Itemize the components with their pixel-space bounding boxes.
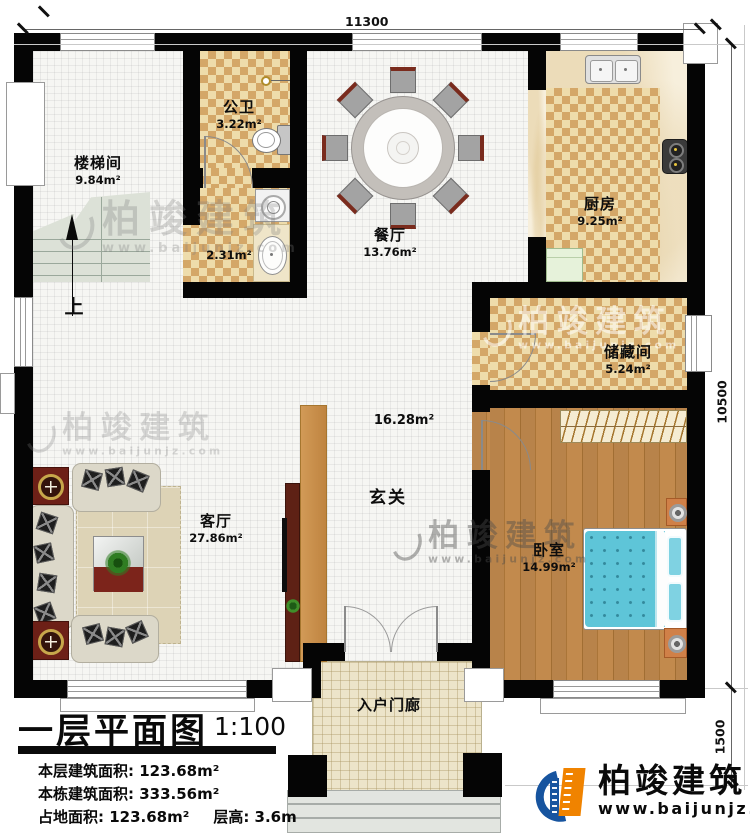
window xyxy=(67,680,247,698)
porch-column xyxy=(288,755,327,797)
kitchen-entry-threshold xyxy=(528,90,546,237)
refrigerator xyxy=(546,248,583,282)
pillow xyxy=(667,582,683,622)
window-sill xyxy=(540,698,686,714)
stove xyxy=(662,139,688,174)
wall xyxy=(155,33,352,51)
dimension-line-right xyxy=(731,44,732,688)
window xyxy=(553,680,660,698)
side-table xyxy=(30,467,69,505)
bay-box xyxy=(6,82,45,186)
wall xyxy=(687,372,705,698)
window xyxy=(60,33,155,51)
room-label-laundry: 2.31m² xyxy=(206,248,251,262)
wardrobe xyxy=(560,410,687,443)
area-info-line: 本栋建筑面积: 333.56m² xyxy=(38,783,219,804)
wall xyxy=(472,470,490,680)
laundry-counter xyxy=(253,224,290,282)
porch-side-sill xyxy=(464,668,504,702)
logo-mark-icon xyxy=(536,764,592,826)
company-logo: 柏竣建筑 www.baijunjz.com xyxy=(536,762,736,828)
potted-plant xyxy=(103,548,133,578)
area-info-line: 占地面积: 123.68m²层高: 3.6m xyxy=(38,806,297,827)
wall xyxy=(482,33,560,51)
porch-floor xyxy=(312,661,482,792)
room-label-bedroom: 卧室14.99m² xyxy=(522,539,575,574)
witness-line xyxy=(744,25,745,790)
window xyxy=(685,315,712,372)
sofa-left xyxy=(29,505,74,629)
wall xyxy=(660,680,705,698)
witness-line xyxy=(14,44,705,45)
porch-side-sill xyxy=(272,668,312,702)
dining-chair xyxy=(458,135,484,161)
dimension-top-value: 11300 xyxy=(345,14,389,29)
entry-door-leaf xyxy=(436,606,438,652)
door-leaf xyxy=(204,136,206,188)
ceiling-light xyxy=(261,76,271,86)
kitchen-sink xyxy=(585,55,641,84)
washing-machine xyxy=(255,189,290,222)
room-label-living: 客厅27.86m² xyxy=(189,510,242,545)
room-label-bathroom: 公卫3.22m² xyxy=(216,96,261,131)
wall xyxy=(14,367,33,698)
room-label-stairwell: 楼梯间9.84m² xyxy=(74,152,122,187)
window xyxy=(352,33,482,51)
wall xyxy=(528,51,546,90)
porch-step xyxy=(287,818,501,833)
room-label-dining: 餐厅13.76m² xyxy=(363,224,416,259)
wall xyxy=(183,51,200,225)
room-label-kitchen: 厨房9.25m² xyxy=(577,193,622,228)
wall xyxy=(14,680,67,698)
dimension-line-top xyxy=(22,29,700,30)
side-table xyxy=(30,621,69,660)
porch-column xyxy=(463,753,502,797)
room-label-hall: 玄关 xyxy=(369,483,407,508)
wall xyxy=(472,298,490,332)
floor-plan-canvas: 上 xyxy=(0,0,750,834)
tv-screen xyxy=(282,518,287,592)
dimension-porch-value: 1500 xyxy=(713,720,728,755)
porch-step xyxy=(287,804,501,818)
sofa-bottom xyxy=(71,615,159,663)
nightstand xyxy=(666,498,687,526)
logo-website-text: www.baijunjz.com xyxy=(598,799,750,818)
door-leaf xyxy=(481,420,483,470)
dining-table-dot xyxy=(396,141,410,155)
title-underline xyxy=(18,746,276,754)
witness-line xyxy=(705,44,745,45)
tv-feature-wall xyxy=(300,405,327,662)
nightstand xyxy=(664,628,687,658)
tv-cabinet xyxy=(285,483,300,662)
storage-door-threshold xyxy=(472,332,490,385)
hall-area-label: 16.28m² xyxy=(374,413,434,428)
pillow xyxy=(667,536,683,577)
light-wire xyxy=(271,80,290,81)
witness-line xyxy=(705,688,748,689)
staircase xyxy=(32,192,150,282)
door-leaf xyxy=(490,333,536,335)
wall xyxy=(472,282,705,298)
wall xyxy=(252,168,307,188)
window xyxy=(560,33,638,51)
entry-door-leaf xyxy=(344,606,346,652)
room-label-porch: 入户门廊 xyxy=(357,694,421,715)
bed-duvet xyxy=(585,531,665,627)
exterior-box xyxy=(0,373,15,414)
logo-brand-text: 柏竣建筑 xyxy=(598,764,750,799)
area-info-line: 本层建筑面积: 123.68m² xyxy=(38,760,219,781)
room-label-storage: 储藏间5.24m² xyxy=(604,341,652,376)
wall xyxy=(183,168,203,188)
dimension-right-value: 10500 xyxy=(715,380,730,424)
drawing-scale: 1:100 xyxy=(214,712,286,741)
sofa-top xyxy=(72,463,161,512)
wall xyxy=(687,33,705,315)
stairs-direction-arrow xyxy=(66,214,78,240)
stairs-up-label: 上 xyxy=(64,292,83,319)
dim-tick xyxy=(38,5,50,17)
cabinet-plant xyxy=(286,598,300,614)
wall xyxy=(472,390,705,408)
window xyxy=(14,297,33,367)
dining-chair xyxy=(322,135,348,161)
dining-chair xyxy=(390,67,416,93)
wall xyxy=(183,282,307,298)
